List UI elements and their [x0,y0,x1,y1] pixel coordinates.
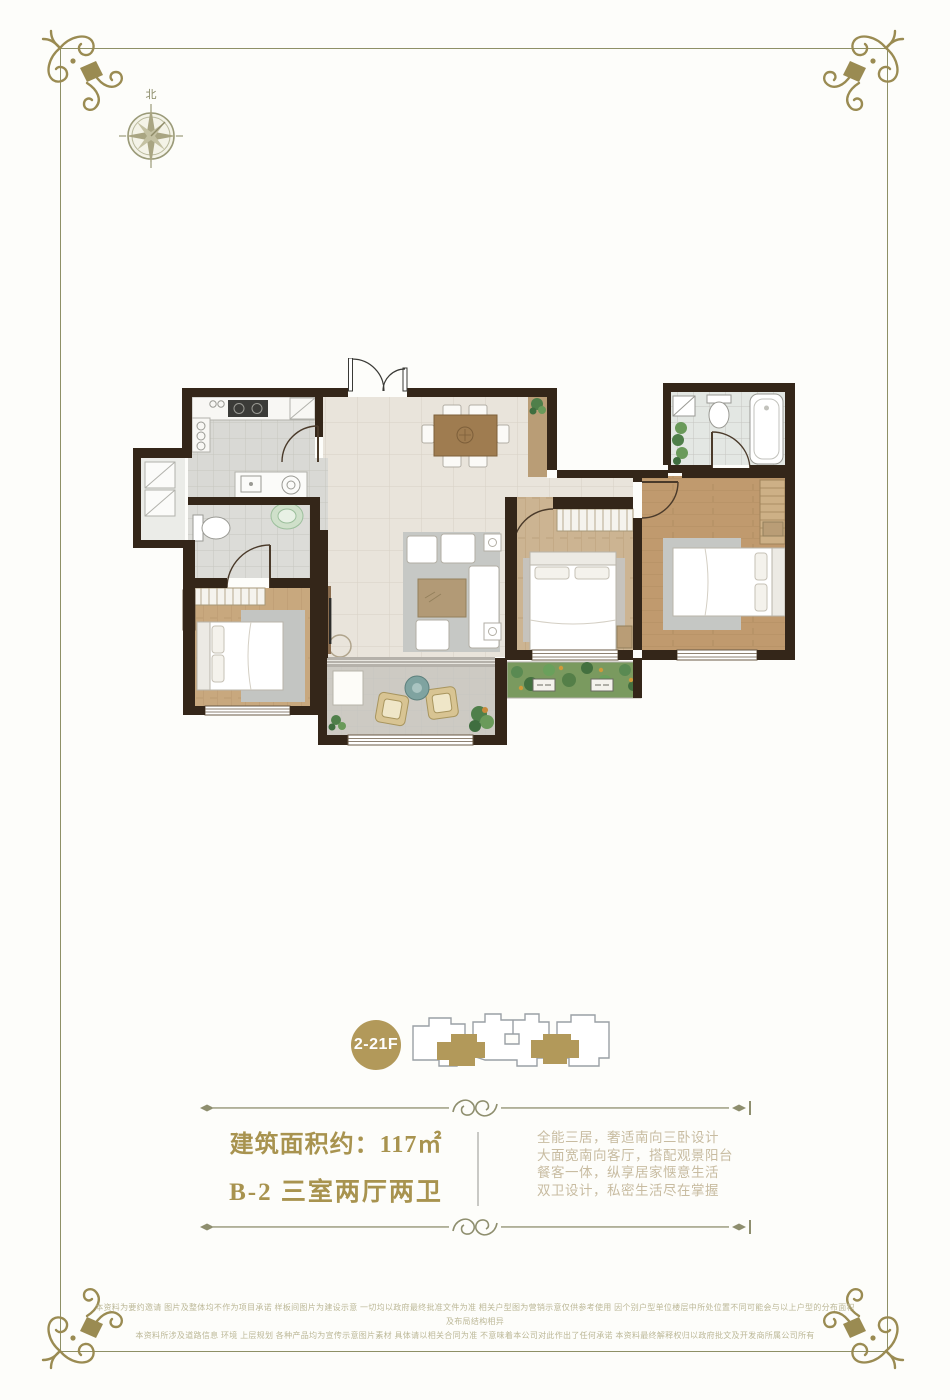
wardrobe-icon [195,588,265,605]
building-footprint [405,1002,620,1082]
stove-icon [228,400,268,417]
floor-badge: 2-21F [351,1020,401,1070]
area-line: 建筑面积约：117㎡ [200,1124,472,1159]
bed [530,552,616,650]
compass-north-label: 北 [146,88,157,101]
bench [763,522,783,536]
entry-cabinet-icon [290,398,315,419]
corner-ornament-icon [806,28,906,128]
compass-icon: 北 [115,84,187,176]
window [532,650,618,660]
disclaimer-line: 本资料为要约邀请 图片及整体均不作为项目承诺 样板间图片为建设示意 一切均以政府… [92,1301,858,1329]
lounge-chair [333,671,363,705]
wicker-chair-icon [425,686,459,720]
bed [197,622,283,690]
ornate-divider [197,1095,753,1121]
description-block: 全能三居，奢适南向三卧设计 大面宽南向客厅，搭配观景阳台 餐客一体，纵享居家惬意… [537,1129,757,1199]
floor-plan [133,358,800,750]
ornate-divider [197,1214,753,1240]
window [205,706,290,715]
balcony-window [348,735,473,745]
description-line: 大面宽南向客厅，搭配观景阳台 [537,1147,757,1165]
disclaimer: 本资料为要约邀请 图片及整体均不作为项目承诺 样板间图片为建设示意 一切均以政府… [92,1301,858,1343]
bathtub-icon [750,394,783,464]
disclaimer-line: 本资料所涉及道路信息 环境 上层规划 各种产品均为宣传示意图片素材 具体请以相关… [92,1329,858,1343]
vanity-icon [673,396,695,416]
description-line: 双卫设计，私密生活尽在掌握 [537,1182,757,1200]
entry-door [349,358,408,391]
flower-bed [507,662,641,698]
laundry-console [235,472,307,498]
wardrobe-icon [557,509,633,531]
bench [617,626,632,648]
description-line: 全能三居，奢适南向三卧设计 [537,1129,757,1147]
dining-table [434,415,497,456]
toilet-icon [707,395,731,428]
wicker-chair-icon [375,692,410,727]
sliding-door [327,657,495,667]
unit-line: B-2 三室两厅两卫 [200,1172,472,1208]
pedestal-basin-icon [271,503,303,529]
vertical-separator [477,1132,479,1206]
bed [673,548,785,616]
toilet-icon [193,515,230,541]
description-line: 餐客一体，纵享居家惬意生活 [537,1164,757,1182]
brochure-page: 北 [0,0,950,1400]
window [677,650,757,660]
area-section: 建筑面积约：117㎡ B-2 三室两厅两卫 [200,1124,472,1208]
